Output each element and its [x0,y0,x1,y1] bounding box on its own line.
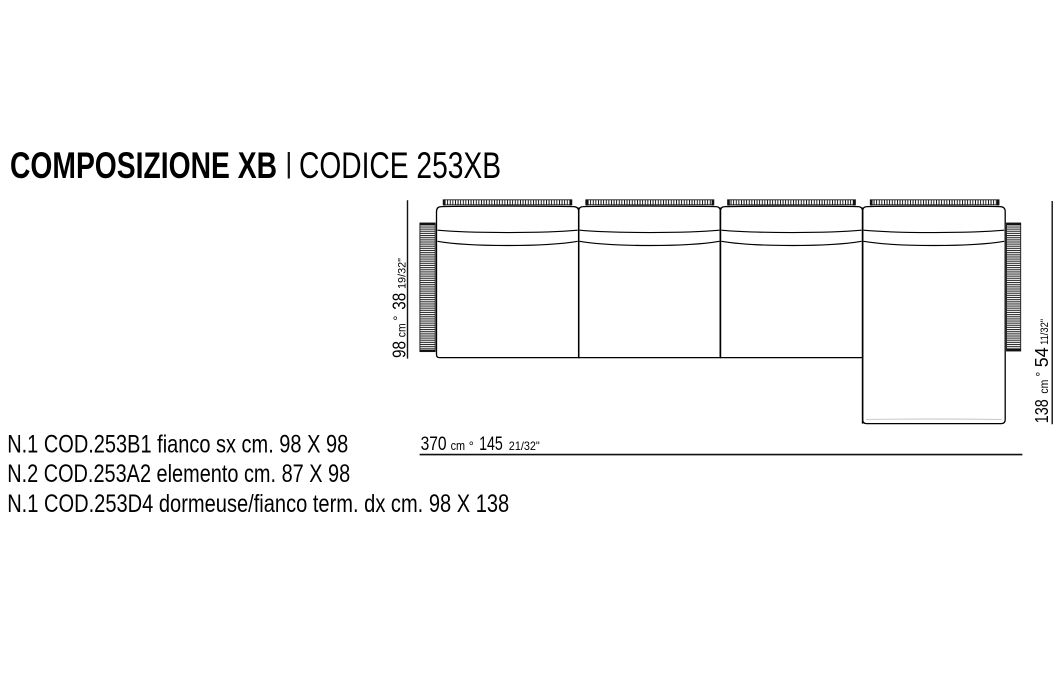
svg-text:11/32": 11/32" [1039,319,1051,345]
svg-text:°: ° [392,316,406,321]
svg-text:19/32": 19/32" [396,258,408,289]
svg-text:cm: cm [394,323,408,337]
svg-text:21/32": 21/32" [509,440,540,453]
svg-text:38: 38 [388,293,409,310]
svg-text:COMPOSIZIONE XB: COMPOSIZIONE XB [10,145,277,186]
svg-text:N.2 COD.253A2 elemento cm. 87: N.2 COD.253A2 elemento cm. 87 X 98 [7,461,350,488]
svg-text:°: ° [469,440,474,454]
svg-text:138: 138 [1031,399,1052,423]
svg-text:370: 370 [421,433,447,455]
svg-text:N.1 COD.253D4 dormeuse/fianco: N.1 COD.253D4 dormeuse/fianco term. dx c… [7,491,509,518]
svg-text:N.1 COD.253B1 fianco sx cm. 98: N.1 COD.253B1 fianco sx cm. 98 X 98 [7,432,348,459]
svg-text:54: 54 [1031,347,1052,367]
svg-text:145: 145 [479,433,503,455]
svg-text:CODICE 253XB: CODICE 253XB [299,145,501,186]
svg-text:cm: cm [1037,380,1051,394]
svg-text:°: ° [1034,372,1048,377]
svg-text:98: 98 [388,341,409,358]
svg-text:cm: cm [451,438,466,453]
